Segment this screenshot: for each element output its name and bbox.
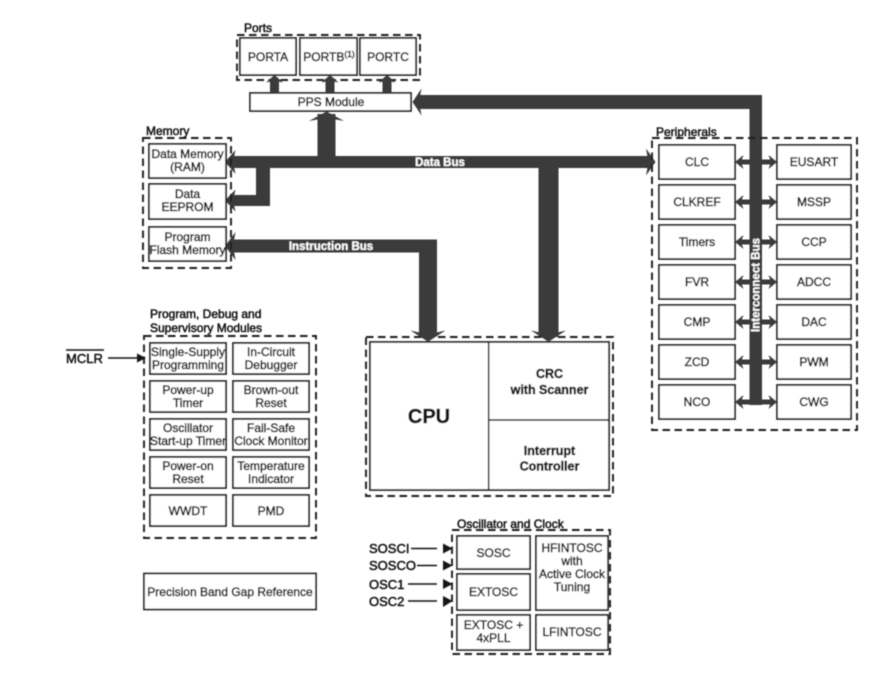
svg-text:LFINTOSC: LFINTOSC bbox=[542, 625, 601, 639]
svg-text:CLKREF: CLKREF bbox=[673, 195, 720, 209]
svg-text:Peripherals: Peripherals bbox=[656, 125, 717, 139]
svg-text:Ports: Ports bbox=[244, 21, 272, 35]
svg-text:CPU: CPU bbox=[408, 406, 450, 428]
svg-text:MSSP: MSSP bbox=[797, 195, 831, 209]
svg-text:Memory: Memory bbox=[146, 124, 189, 138]
svg-text:InterruptController: InterruptController bbox=[520, 444, 580, 474]
svg-text:In-CircuitDebugger: In-CircuitDebugger bbox=[245, 345, 298, 372]
svg-text:CMP: CMP bbox=[684, 315, 711, 329]
svg-text:ZCD: ZCD bbox=[685, 355, 710, 369]
svg-text:PPS Module: PPS Module bbox=[298, 95, 365, 109]
svg-text:EUSART: EUSART bbox=[790, 155, 839, 169]
svg-text:PMD: PMD bbox=[258, 504, 285, 518]
svg-text:WWDT: WWDT bbox=[169, 504, 208, 518]
svg-text:ADCC: ADCC bbox=[797, 275, 831, 289]
svg-text:Data Bus: Data Bus bbox=[415, 157, 465, 169]
svg-text:PWM: PWM bbox=[799, 355, 828, 369]
svg-text:Timers: Timers bbox=[679, 235, 715, 249]
svg-text:OSC2: OSC2 bbox=[369, 594, 404, 609]
svg-text:Interconnect Bus: Interconnect Bus bbox=[751, 238, 763, 332]
svg-text:MCLR: MCLR bbox=[66, 351, 103, 366]
svg-text:FVR: FVR bbox=[685, 275, 709, 289]
svg-text:SOSCI: SOSCI bbox=[369, 541, 409, 556]
svg-text:Precision Band Gap Reference: Precision Band Gap Reference bbox=[147, 585, 313, 599]
svg-text:NCO: NCO bbox=[684, 395, 711, 409]
svg-text:CWG: CWG bbox=[799, 395, 828, 409]
svg-text:CCP: CCP bbox=[801, 235, 826, 249]
svg-text:SOSCO: SOSCO bbox=[369, 558, 416, 573]
svg-text:Instruction Bus: Instruction Bus bbox=[289, 241, 373, 253]
svg-text:PORTA: PORTA bbox=[248, 50, 288, 64]
svg-text:EXTOSC: EXTOSC bbox=[469, 585, 518, 599]
svg-text:Oscillator and Clock: Oscillator and Clock bbox=[457, 517, 565, 531]
svg-text:CLC: CLC bbox=[685, 155, 709, 169]
svg-text:PORTC: PORTC bbox=[367, 50, 409, 64]
svg-text:Program, Debug andSupervisory: Program, Debug andSupervisory Modules bbox=[150, 307, 262, 335]
svg-text:OSC1: OSC1 bbox=[369, 577, 404, 592]
svg-text:Single-SupplyProgramming: Single-SupplyProgramming bbox=[151, 345, 225, 372]
svg-text:SOSC: SOSC bbox=[476, 546, 510, 560]
svg-text:DAC: DAC bbox=[801, 315, 827, 329]
